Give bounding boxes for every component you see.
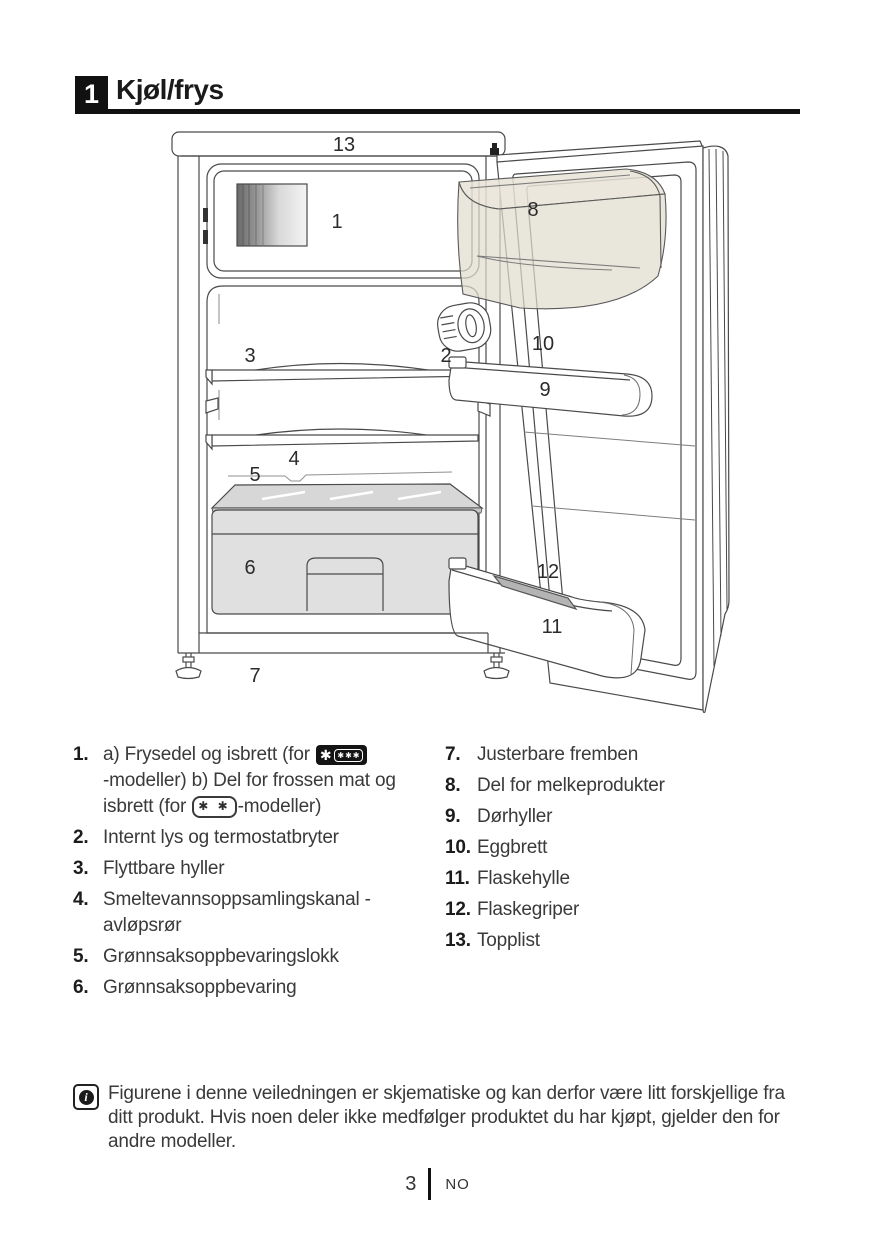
item-number: 9.	[445, 804, 477, 830]
footer-divider	[428, 1168, 431, 1200]
diagram-label-8: 8	[527, 199, 538, 221]
list-item: 7. Justerbare fremben	[445, 742, 775, 768]
item-text: Grønnsaksoppbevaring	[103, 975, 445, 1001]
diagram-label-13: 13	[333, 134, 355, 156]
list-item: 13. Topplist	[445, 928, 775, 954]
chapter-number-box: 1	[75, 76, 108, 112]
item-number: 11.	[445, 866, 477, 892]
item-number: 13.	[445, 928, 477, 954]
language-code: NO	[445, 1176, 470, 1193]
item-text: Topplist	[477, 928, 775, 954]
ice-tray	[237, 184, 307, 246]
item1-line1: a) Frysedel og isbrett (for	[103, 742, 310, 768]
item-text: Flaskehylle	[477, 866, 775, 892]
crisper-lid	[212, 484, 482, 513]
dairy-compartment	[458, 169, 666, 309]
item-number: 8.	[445, 773, 477, 799]
page-footer: 3 NO	[0, 1168, 875, 1200]
manual-page: 1 Kjøl/frys	[0, 0, 875, 1241]
header-rule	[75, 109, 800, 114]
chapter-header: 1 Kjøl/frys	[75, 76, 800, 116]
door-hinge-pin	[492, 143, 497, 148]
shelf-lower	[206, 429, 478, 449]
diagram-label-10: 10	[532, 333, 554, 355]
item-text: Justerbare fremben	[477, 742, 775, 768]
item1-line3-post: -modeller)	[238, 794, 322, 820]
list-item: 2. Internt lys og termostatbryter	[73, 825, 445, 851]
page-title: Kjøl/frys	[116, 74, 224, 106]
list-item: 6. Grønnsaksoppbevaring	[73, 975, 445, 1001]
chapter-number: 1	[84, 79, 99, 110]
item-number: 7.	[445, 742, 477, 768]
freezer-hinge-mark	[203, 230, 208, 244]
item-text: Internt lys og termostatbryter	[103, 825, 445, 851]
foot-right	[484, 653, 509, 679]
list-item: 8. Del for melkeprodukter	[445, 773, 775, 799]
info-note: i Figurene i denne veiledningen er skjem…	[73, 1082, 805, 1154]
item-text: Grønnsaksoppbevaringslokk	[103, 944, 445, 970]
diagram-label-11: 11	[542, 616, 563, 638]
diagram-label-4: 4	[288, 448, 299, 470]
fridge-drawing: 13 1 8 2 10 3 9 4 5 6 12 11 7	[0, 118, 875, 768]
diagram-label-7: 7	[249, 665, 260, 687]
list-item: 10. Eggbrett	[445, 835, 775, 861]
list-item: 3. Flyttbare hyller	[73, 856, 445, 882]
item1-line2: -modeller) b) Del for frossen mat og	[103, 768, 445, 794]
note-text: Figurene i denne veiledningen er skjemat…	[108, 1082, 805, 1154]
page-number: 3	[405, 1173, 416, 1196]
drip-channel	[228, 472, 452, 481]
diagram-label-6: 6	[244, 557, 255, 579]
list-item: 9. Dørhyller	[445, 804, 775, 830]
list-item: 12. Flaskegriper	[445, 897, 775, 923]
two-star-rating-icon: ✱ ✱	[192, 796, 236, 818]
info-icon-letter: i	[79, 1090, 94, 1105]
list-item: 5. Grønnsaksoppbevaringslokk	[73, 944, 445, 970]
item-number: 1.	[73, 742, 103, 820]
info-icon: i	[73, 1084, 99, 1110]
item-number: 5.	[73, 944, 103, 970]
list-item: 1. a) Frysedel og isbrett (for ✱✱✱✱ -mod…	[73, 742, 445, 820]
item-text: Flaskegriper	[477, 897, 775, 923]
parts-list-left: 1. a) Frysedel og isbrett (for ✱✱✱✱ -mod…	[73, 742, 445, 1006]
diagram-label-5: 5	[249, 464, 260, 486]
item-number: 10.	[445, 835, 477, 861]
diagram-label-12: 12	[537, 561, 559, 583]
item-text: a) Frysedel og isbrett (for ✱✱✱✱ -modell…	[103, 742, 445, 820]
four-star-rating-icon: ✱✱✱✱	[316, 745, 368, 765]
parts-list-right: 7. Justerbare fremben 8. Del for melkepr…	[445, 742, 775, 959]
list-item: 4. Smeltevannsoppsamlingskanal - avløpsr…	[73, 887, 445, 939]
diagram-label-9: 9	[539, 379, 550, 401]
shelf-bracket	[206, 398, 218, 413]
item-number: 3.	[73, 856, 103, 882]
item-number: 2.	[73, 825, 103, 851]
diagram-label-1: 1	[331, 211, 342, 233]
diagram-label-2: 2	[440, 345, 451, 367]
crisper-handle	[307, 558, 383, 611]
door-hinge-pin	[490, 148, 499, 155]
diagram-label-3: 3	[244, 345, 255, 367]
item-text: Dørhyller	[477, 804, 775, 830]
list-item: 11. Flaskehylle	[445, 866, 775, 892]
foot-left	[176, 653, 201, 679]
item-text: Del for melkeprodukter	[477, 773, 775, 799]
fridge-door	[449, 141, 729, 713]
item-text: Eggbrett	[477, 835, 775, 861]
item-text: Flyttbare hyller	[103, 856, 445, 882]
item-number: 4.	[73, 887, 103, 939]
item-text: Smeltevannsoppsamlingskanal - avløpsrør	[103, 887, 445, 939]
plinth-and-feet	[176, 633, 509, 679]
item-number: 12.	[445, 897, 477, 923]
fridge-diagram: 13 1 8 2 10 3 9 4 5 6 12 11 7	[0, 118, 875, 768]
item-number: 6.	[73, 975, 103, 1001]
freezer-hinge-mark	[203, 208, 208, 222]
item1-line3-pre: isbrett (for	[103, 794, 186, 820]
